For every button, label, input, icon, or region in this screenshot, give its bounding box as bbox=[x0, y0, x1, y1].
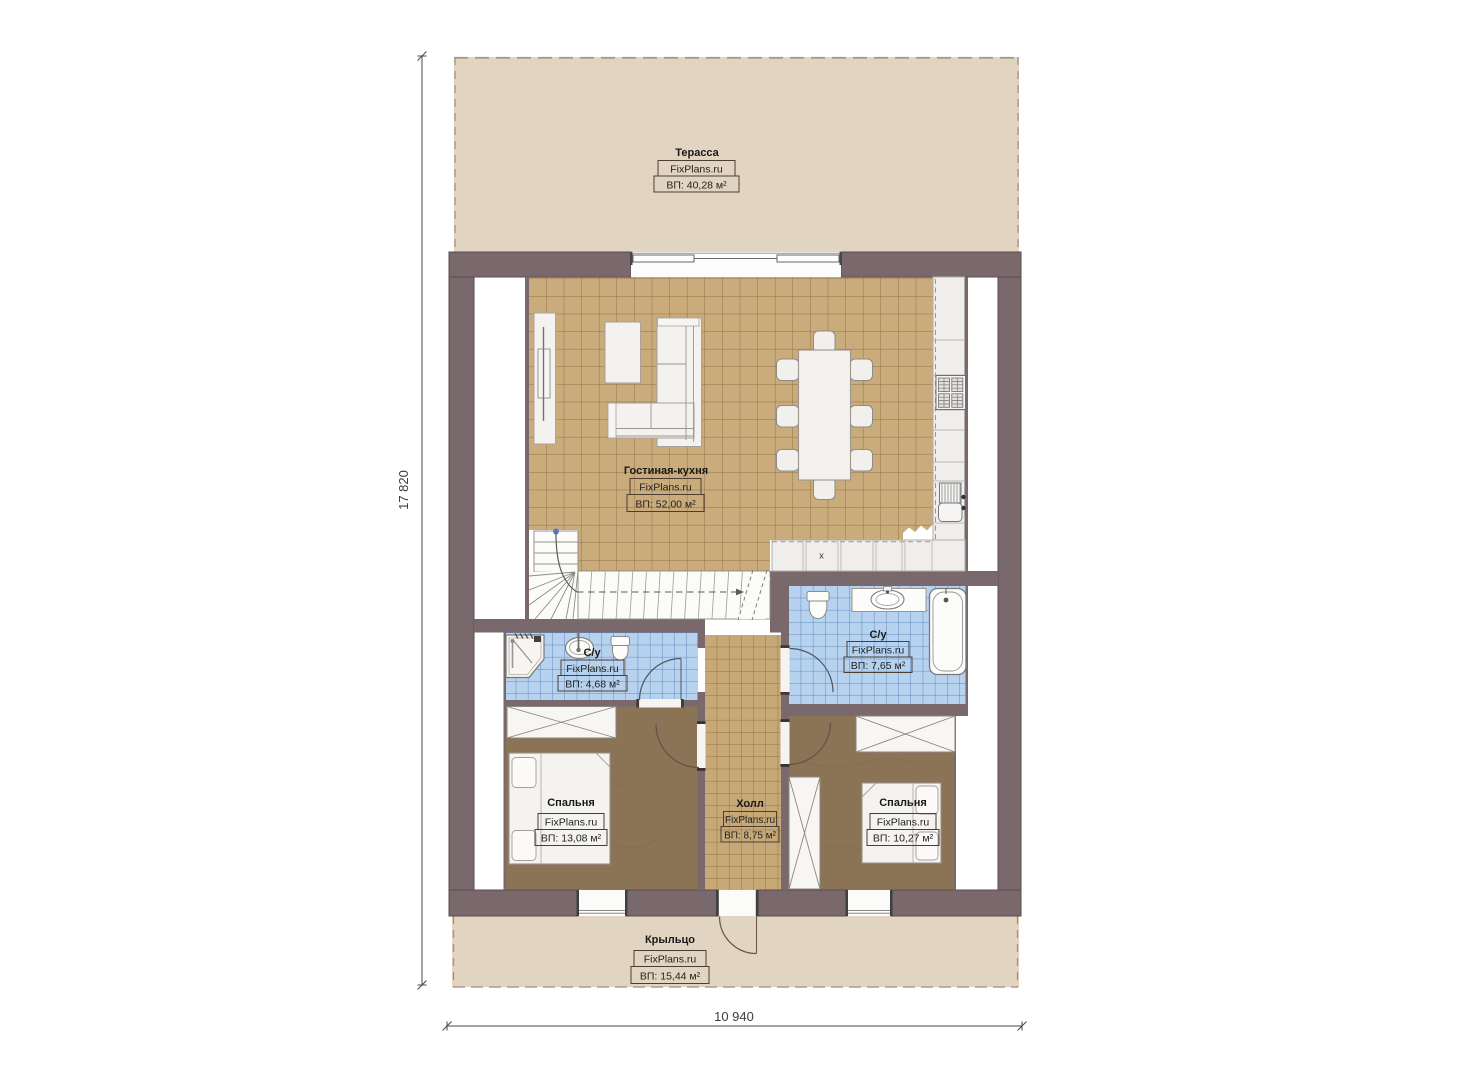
svg-text:ВП: 13,08 м²: ВП: 13,08 м² bbox=[541, 833, 602, 845]
svg-text:FixPlans.ru: FixPlans.ru bbox=[877, 817, 930, 829]
svg-text:FixPlans.ru: FixPlans.ru bbox=[725, 815, 775, 826]
svg-text:10 940: 10 940 bbox=[714, 1009, 754, 1024]
svg-text:ВП: 7,65 м²: ВП: 7,65 м² bbox=[851, 660, 906, 672]
svg-text:С/у: С/у bbox=[583, 647, 601, 659]
svg-text:ВП: 52,00 м²: ВП: 52,00 м² bbox=[635, 499, 696, 511]
svg-text:FixPlans.ru: FixPlans.ru bbox=[566, 663, 619, 675]
svg-text:FixPlans.ru: FixPlans.ru bbox=[670, 164, 723, 176]
svg-text:С/у: С/у bbox=[869, 629, 887, 641]
svg-text:x: x bbox=[819, 551, 824, 562]
svg-text:ВП: 40,28 м²: ВП: 40,28 м² bbox=[666, 180, 727, 192]
svg-text:FixPlans.ru: FixPlans.ru bbox=[639, 482, 692, 494]
svg-text:FixPlans.ru: FixPlans.ru bbox=[644, 954, 697, 966]
svg-text:17 820: 17 820 bbox=[396, 470, 411, 510]
svg-text:Терасса: Терасса bbox=[675, 147, 719, 159]
svg-text:Крыльцо: Крыльцо bbox=[645, 934, 695, 946]
svg-text:ВП: 15,44 м²: ВП: 15,44 м² bbox=[640, 971, 701, 983]
svg-text:Гостиная-кухня: Гостиная-кухня bbox=[624, 465, 708, 477]
svg-text:Спальня: Спальня bbox=[547, 797, 595, 809]
svg-text:FixPlans.ru: FixPlans.ru bbox=[545, 817, 598, 829]
svg-text:ВП: 10,27 м²: ВП: 10,27 м² bbox=[873, 833, 934, 845]
svg-text:ВП: 4,68 м²: ВП: 4,68 м² bbox=[565, 679, 620, 691]
svg-text:Спальня: Спальня bbox=[879, 797, 927, 809]
svg-text:FixPlans.ru: FixPlans.ru bbox=[852, 645, 905, 657]
svg-text:Холл: Холл bbox=[736, 798, 764, 810]
svg-text:ВП: 8,75 м²: ВП: 8,75 м² bbox=[724, 831, 777, 842]
